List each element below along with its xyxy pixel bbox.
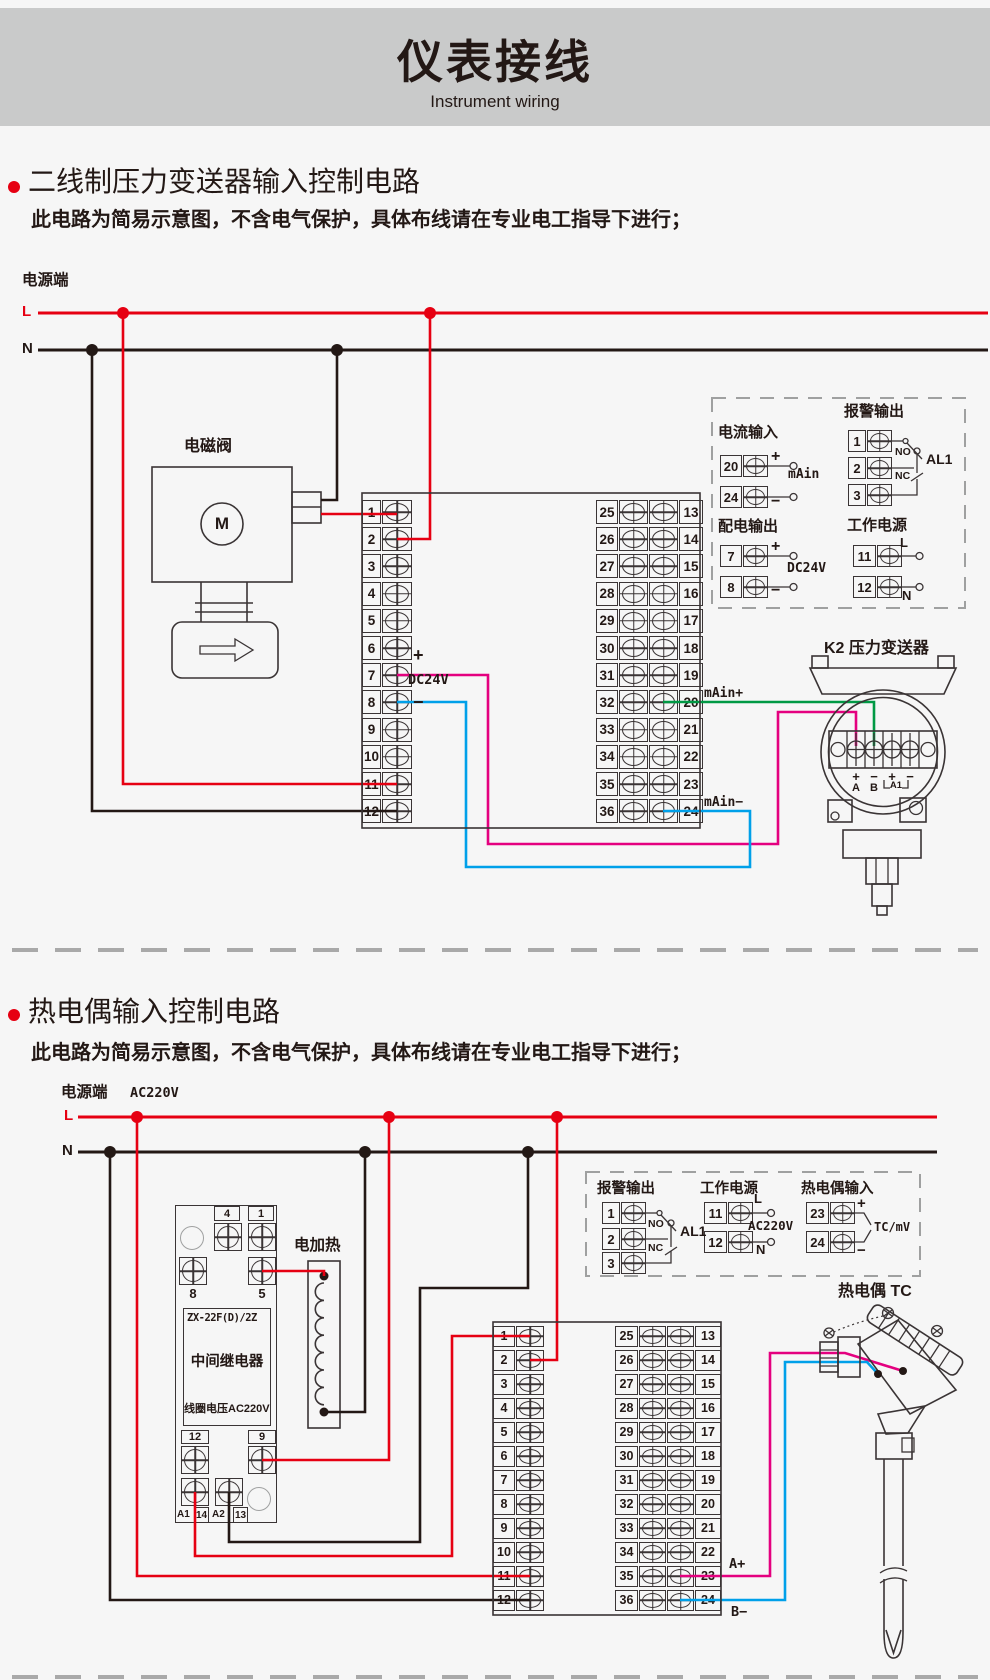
terminal-number: 12 (362, 799, 381, 823)
solenoid-valve-drawing (152, 467, 321, 678)
screw-terminal-icon (382, 745, 412, 769)
line-l-label: L (22, 303, 31, 320)
screw-terminal-icon (649, 554, 678, 578)
relay-terminal-label: A2 (212, 1509, 225, 1521)
bullet-icon (8, 1009, 20, 1021)
screw-terminal-icon (619, 745, 648, 769)
screw-terminal-icon (649, 636, 678, 660)
terminal-number: 20 (720, 455, 742, 477)
power-terminal-label: 电源端 (61, 1084, 108, 1102)
terminal-number: 15 (695, 1374, 721, 1395)
line-n-label: N (22, 340, 33, 357)
terminal-number: 2 (362, 527, 381, 551)
terminal-number: 23 (679, 772, 703, 796)
terminal-number: 24 (695, 1590, 721, 1611)
screw-terminal-icon (649, 609, 678, 633)
screw-terminal-icon (621, 1252, 646, 1274)
terminal-row: 3018 (615, 1446, 721, 1467)
terminal-row: 8 (493, 1494, 544, 1515)
minus-sign: − (857, 1242, 866, 1259)
current-input-title: 电流输入 (718, 424, 778, 441)
screw-terminal-icon (667, 1542, 694, 1563)
screw-terminal-icon (382, 609, 412, 633)
terminal-number: 12 (493, 1590, 515, 1611)
terminal-number: 18 (679, 636, 703, 660)
no-label: NO (895, 446, 911, 458)
terminal-number: 32 (615, 1494, 638, 1515)
screw-terminal-icon (621, 1228, 646, 1250)
work-power-title: 工作电源 (700, 1181, 758, 1198)
terminal-number: 11 (704, 1202, 727, 1224)
terminal-number: 26 (596, 527, 618, 551)
relay-terminal-label: 9 (248, 1430, 276, 1444)
sign: − (903, 770, 917, 785)
terminal-row: 2917 (596, 609, 703, 633)
minus-sign: − (413, 692, 424, 713)
screw-terminal-icon (649, 690, 678, 714)
terminal-row: 5 (362, 609, 412, 633)
terminal-row: 9 (493, 1518, 544, 1539)
terminal-row: 3220 (596, 690, 703, 714)
screw-terminal-icon (649, 582, 678, 606)
terminal-number: 19 (679, 663, 703, 687)
screw-terminal-icon (639, 1350, 666, 1371)
terminal-a-label: A (849, 782, 863, 795)
terminal-b-label: B (867, 782, 881, 795)
page-title: 仪表接线 (0, 26, 990, 92)
terminal-number: 17 (679, 609, 703, 633)
terminal-number: 15 (679, 554, 703, 578)
relay-terminal-label: 1 (248, 1206, 274, 1221)
screw-terminal-icon (667, 1446, 694, 1467)
screw-terminal-icon (516, 1374, 544, 1395)
terminal-number: 27 (596, 554, 618, 578)
terminal-row: 6 (362, 636, 412, 660)
line-n-label: N (62, 1142, 73, 1159)
terminal-row: 5 (493, 1422, 544, 1443)
wire-n-to-solenoid (321, 350, 337, 500)
terminal-number: 28 (596, 582, 618, 606)
terminal-number: 10 (362, 745, 381, 769)
terminal-row: 3624 (615, 1590, 721, 1611)
screw-terminal-icon (649, 718, 678, 742)
terminal-number: 22 (679, 745, 703, 769)
terminal-row: 2715 (596, 554, 703, 578)
terminal-number: 11 (853, 545, 876, 567)
dc24v-label: DC24V (787, 562, 826, 577)
terminal-number: 14 (695, 1350, 721, 1371)
section1-title: 二线制压力变送器输入控制电路 (28, 166, 420, 198)
relay-model: ZX-22F(D)/2Z (187, 1312, 257, 1324)
bullet-icon (8, 181, 20, 193)
screw-terminal-icon (867, 484, 892, 506)
relay-terminal-label: 13 (233, 1507, 248, 1523)
terminal-number: 11 (362, 772, 381, 796)
panel-terminal: 1 (848, 430, 892, 452)
work-power-title: 工作电源 (847, 517, 907, 534)
header-banner: 仪表接线 Instrument wiring (0, 8, 990, 126)
screw-terminal-icon (619, 663, 648, 687)
terminal-row: 1 (362, 500, 412, 524)
transmitter-label: K2 压力变送器 (824, 640, 929, 658)
minus-sign: − (771, 493, 780, 511)
terminal-row: 2816 (596, 582, 703, 606)
terminal-number: 21 (695, 1518, 721, 1539)
screw-terminal-icon (181, 1446, 209, 1474)
terminal-number: 16 (679, 582, 703, 606)
plus-sign: + (857, 1195, 866, 1212)
terminal-number: 33 (596, 718, 618, 742)
relay-terminal-label: 5 (255, 1287, 269, 1302)
plus-sign: + (413, 645, 424, 666)
terminal-number: 22 (695, 1542, 721, 1563)
terminal-number: 23 (806, 1202, 829, 1224)
screw-terminal-icon (619, 500, 648, 524)
section2-note: 此电路为简易示意图，不含电气保护，具体布线请在专业电工指导下进行； (31, 1042, 691, 1065)
thermocouple-label: 热电偶 TC (838, 1283, 912, 1301)
screw-terminal-icon (516, 1326, 544, 1347)
screw-terminal-icon (619, 527, 648, 551)
terminal-number: 25 (615, 1326, 638, 1347)
terminal-number: 24 (720, 486, 742, 508)
terminal-number: 19 (695, 1470, 721, 1491)
screw-terminal-icon (179, 1257, 207, 1285)
relay-terminal-label: A1 (177, 1509, 190, 1521)
screw-terminal-icon (382, 799, 412, 823)
relay-terminal-label: 12 (181, 1430, 209, 1444)
terminal-number: 35 (615, 1566, 638, 1587)
screw-terminal-icon (248, 1257, 276, 1285)
terminal-row: 2614 (596, 527, 703, 551)
terminal-number: 32 (596, 690, 618, 714)
n-label: N (902, 589, 911, 604)
power-terminal-label: 电源端 (22, 272, 69, 290)
screw-terminal-icon (639, 1566, 666, 1587)
screw-terminal-icon (516, 1590, 544, 1611)
screw-terminal-icon (743, 486, 768, 508)
terminal-number: 36 (615, 1590, 638, 1611)
wire-n-to-12 (92, 350, 397, 811)
terminal-row: 3624 (596, 799, 703, 823)
relay-terminal-label: 14 (194, 1507, 209, 1523)
screw-terminal-icon (639, 1398, 666, 1419)
terminal-row: 3422 (596, 745, 703, 769)
line-l-label: L (64, 1107, 73, 1124)
terminal-number: 8 (362, 690, 381, 714)
terminal-row: 10 (493, 1542, 544, 1563)
relay-terminal-label: 8 (186, 1287, 200, 1302)
terminal-number: 1 (493, 1326, 515, 1347)
terminal-number: 3 (362, 554, 381, 578)
screw-terminal-icon (619, 554, 648, 578)
screw-terminal-icon (516, 1350, 544, 1371)
plus-sign: + (771, 538, 780, 556)
screw-terminal-icon (649, 745, 678, 769)
screw-terminal-icon (649, 527, 678, 551)
terminal-number: 27 (615, 1374, 638, 1395)
heater-drawing (308, 1261, 340, 1428)
terminal-number: 33 (615, 1518, 638, 1539)
terminal-row: 2 (493, 1350, 544, 1371)
terminal-number: 29 (596, 609, 618, 633)
voltage-label: AC220V (130, 1086, 179, 1102)
terminal-number: 20 (695, 1494, 721, 1515)
screw-terminal-icon (667, 1494, 694, 1515)
pressure-transmitter-drawing (810, 656, 956, 915)
panel-terminal: 7 (720, 545, 768, 567)
terminal-row: 12 (362, 799, 412, 823)
terminal-row: 4 (493, 1398, 544, 1419)
b-minus-label: B− (731, 1605, 747, 1621)
screw-terminal-icon (639, 1494, 666, 1515)
panel-terminal: 2 (848, 457, 892, 479)
terminal-row: 9 (362, 718, 412, 742)
terminal-row: 3119 (615, 1470, 721, 1491)
terminal-row: 2917 (615, 1422, 721, 1443)
screw-terminal-icon (619, 718, 648, 742)
relay-coil-voltage: 线圈电压AC220V (184, 1403, 270, 1416)
screw-terminal-icon (639, 1542, 666, 1563)
panel-terminal: 24 (806, 1231, 855, 1253)
screw-terminal-icon (867, 430, 892, 452)
panel-terminal: 1 (602, 1202, 646, 1224)
dist-output-title: 配电输出 (718, 518, 778, 535)
thermocouple-drawing (820, 1303, 965, 1658)
screw-terminal-icon (667, 1470, 694, 1491)
screw-terminal-icon (382, 554, 412, 578)
section1-note: 此电路为简易示意图，不含电气保护，具体布线请在专业电工指导下进行； (31, 209, 691, 232)
screw-terminal-icon (382, 500, 412, 524)
terminal-number: 3 (493, 1374, 515, 1395)
screw-terminal-icon (516, 1398, 544, 1419)
terminal-number: 20 (679, 690, 703, 714)
screw-terminal-icon (382, 582, 412, 606)
terminal-row: 3119 (596, 663, 703, 687)
terminal-number: 34 (596, 745, 618, 769)
terminal-number: 3 (848, 484, 866, 506)
terminal-row: 3523 (596, 772, 703, 796)
screw-terminal-icon (639, 1326, 666, 1347)
terminal-number: 12 (853, 576, 876, 598)
terminal-number: 12 (704, 1231, 727, 1253)
screw-terminal-icon (639, 1422, 666, 1443)
screw-terminal-icon (667, 1326, 694, 1347)
screw-terminal-icon (516, 1518, 544, 1539)
relay-name: 中间继电器 (185, 1354, 269, 1371)
al1-label: AL1 (680, 1223, 706, 1239)
screw-terminal-icon (516, 1470, 544, 1491)
terminal-row: 11 (362, 772, 412, 796)
terminal-row: 12 (493, 1590, 544, 1611)
terminal-row: 3321 (615, 1518, 721, 1539)
terminal-row: 4 (362, 582, 412, 606)
wire-l-to-relay9 (262, 1117, 389, 1460)
screw-terminal-icon (516, 1566, 544, 1587)
screw-terminal-icon (619, 609, 648, 633)
screw-terminal-icon (667, 1374, 694, 1395)
screw-terminal-icon (639, 1470, 666, 1491)
screw-terminal-icon (639, 1518, 666, 1539)
terminal-number: 5 (362, 609, 381, 633)
screw-terminal-icon (639, 1446, 666, 1467)
terminal-number: 2 (493, 1350, 515, 1371)
wire-n-to-12 (110, 1152, 530, 1600)
terminal-number: 24 (679, 799, 703, 823)
terminal-number: 23 (695, 1566, 721, 1587)
terminal-number: 24 (806, 1231, 829, 1253)
screw-terminal-icon (619, 799, 648, 823)
alarm-output-title: 报警输出 (597, 1181, 655, 1198)
terminal-row: 2715 (615, 1374, 721, 1395)
panel-terminal: 8 (720, 576, 768, 598)
terminal-number: 29 (615, 1422, 638, 1443)
wiring-diagram-page: 仪表接线 Instrument wiring 二线制压力变送器输入控制电路 此电… (0, 0, 990, 1680)
terminal-number: 25 (596, 500, 618, 524)
screw-terminal-icon (877, 576, 902, 598)
sec2-power-rails (78, 1111, 937, 1158)
terminal-number: 9 (362, 718, 381, 742)
terminal-number: 7 (720, 545, 742, 567)
panel-terminal: 23 (806, 1202, 855, 1224)
no-label: NO (648, 1218, 664, 1230)
terminal-number: 13 (679, 500, 703, 524)
panel-terminal: 20 (720, 455, 768, 477)
terminal-number: 9 (493, 1518, 515, 1539)
screw-terminal-icon (215, 1478, 243, 1506)
terminal-number: 1 (848, 430, 866, 452)
screw-terminal-icon (248, 1223, 276, 1251)
terminal-number: 1 (362, 500, 381, 524)
terminal-number: 18 (695, 1446, 721, 1467)
main-minus-label: mAin− (704, 796, 743, 811)
screw-terminal-icon (516, 1446, 544, 1467)
screw-terminal-icon (516, 1542, 544, 1563)
terminal-number: 6 (493, 1446, 515, 1467)
terminal-row: 2614 (615, 1350, 721, 1371)
page-subtitle: Instrument wiring (0, 92, 990, 112)
solenoid-label: 电磁阀 (184, 438, 232, 456)
screw-terminal-icon (516, 1494, 544, 1515)
screw-terminal-icon (639, 1590, 666, 1611)
motor-letter: M (208, 514, 236, 534)
screw-terminal-icon (382, 772, 412, 796)
screw-terminal-icon (619, 636, 648, 660)
terminal-number: 3 (602, 1252, 620, 1274)
terminal-row: 3018 (596, 636, 703, 660)
terminal-number: 17 (695, 1422, 721, 1443)
terminal-number: 14 (679, 527, 703, 551)
terminal-row: 7 (493, 1470, 544, 1491)
terminal-row: 7 (362, 663, 412, 687)
screw-terminal-icon (382, 718, 412, 742)
terminal-row: 3 (362, 554, 412, 578)
terminal-row: 11 (493, 1566, 544, 1587)
panel-terminal: 11 (853, 545, 902, 567)
screw-terminal-icon (639, 1374, 666, 1395)
relay-hole-icon (180, 1226, 204, 1250)
terminal-number: 31 (615, 1470, 638, 1491)
screw-terminal-icon (649, 500, 678, 524)
screw-terminal-icon (649, 772, 678, 796)
screw-terminal-icon (743, 545, 768, 567)
screw-terminal-icon (382, 636, 412, 660)
screw-terminal-icon (830, 1202, 855, 1224)
screw-terminal-icon (248, 1446, 276, 1474)
terminal-row: 2513 (596, 500, 703, 524)
terminal-number: 10 (493, 1542, 515, 1563)
screw-terminal-icon (619, 772, 648, 796)
panel-terminal: 24 (720, 486, 768, 508)
terminal-number: 7 (362, 663, 381, 687)
panel-terminal: 11 (704, 1202, 753, 1224)
terminal-number: 34 (615, 1542, 638, 1563)
relay-terminal-label: 4 (214, 1206, 240, 1221)
terminal-row: 3 (493, 1374, 544, 1395)
terminal-number: 13 (695, 1326, 721, 1347)
screw-terminal-icon (667, 1566, 694, 1587)
nc-label: NC (895, 470, 910, 482)
screw-terminal-icon (619, 582, 648, 606)
screw-terminal-icon (877, 545, 902, 567)
main-label: mAin (788, 468, 819, 483)
terminal-number: 4 (493, 1398, 515, 1419)
terminal-number: 30 (615, 1446, 638, 1467)
terminal-row: 3422 (615, 1542, 721, 1563)
terminal-number: 16 (695, 1398, 721, 1419)
screw-terminal-icon (382, 690, 412, 714)
section2-title: 热电偶输入控制电路 (28, 996, 280, 1028)
terminal-number: 26 (615, 1350, 638, 1371)
terminal-row: 3220 (615, 1494, 721, 1515)
terminal-row: 3523 (615, 1566, 721, 1587)
screw-terminal-icon (667, 1590, 694, 1611)
screw-terminal-icon (649, 799, 678, 823)
a-plus-label: A+ (729, 1557, 745, 1573)
terminal-number: 31 (596, 663, 618, 687)
screw-terminal-icon (667, 1422, 694, 1443)
terminal-number: 11 (493, 1566, 515, 1587)
terminal-number: 35 (596, 772, 618, 796)
screw-terminal-icon (621, 1202, 646, 1224)
sec1-power-rails (38, 307, 988, 356)
terminal-number: 6 (362, 636, 381, 660)
terminal-number: 28 (615, 1398, 638, 1419)
l-label: L (754, 1192, 762, 1207)
relay-hole-icon (247, 1487, 271, 1511)
ac220v-label: AC220V (748, 1219, 793, 1233)
screw-terminal-icon (667, 1350, 694, 1371)
terminal-number: 1 (602, 1202, 620, 1224)
screw-terminal-icon (867, 457, 892, 479)
l-label: L (900, 536, 908, 551)
panel-terminal: 12 (853, 576, 902, 598)
terminal-number: 5 (493, 1422, 515, 1443)
panel-terminal: 12 (704, 1231, 753, 1253)
screw-terminal-icon (382, 527, 412, 551)
screw-terminal-icon (743, 576, 768, 598)
tcmv-label: TC/mV (874, 1221, 910, 1235)
dc24v-label: DC24V (408, 673, 449, 689)
terminal-row: 10 (362, 745, 412, 769)
terminal-row: 1 (493, 1326, 544, 1347)
terminal-row: 2 (362, 527, 412, 551)
screw-terminal-icon (830, 1231, 855, 1253)
n-label: N (756, 1243, 765, 1258)
terminal-row: 3321 (596, 718, 703, 742)
screw-terminal-icon (619, 690, 648, 714)
terminal-row: 2513 (615, 1326, 721, 1347)
wire-n-to-heater (324, 1152, 365, 1412)
